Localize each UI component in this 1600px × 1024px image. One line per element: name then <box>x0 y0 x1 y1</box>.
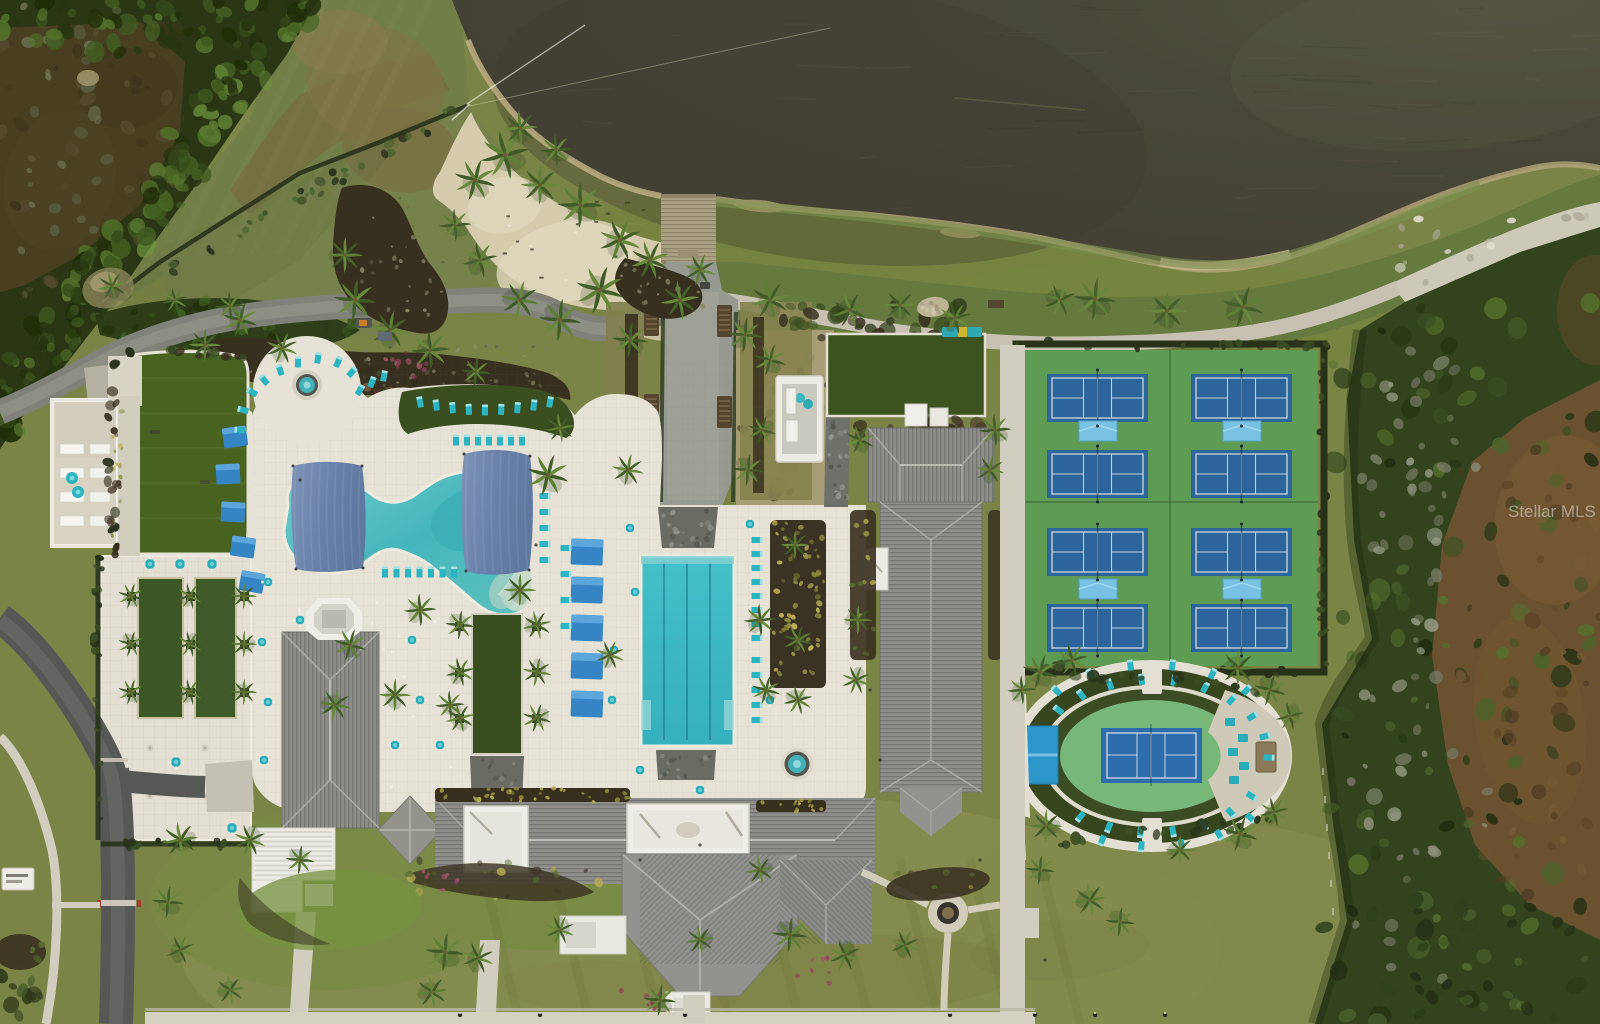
svg-text:Stellar MLS: Stellar MLS <box>1508 502 1596 521</box>
